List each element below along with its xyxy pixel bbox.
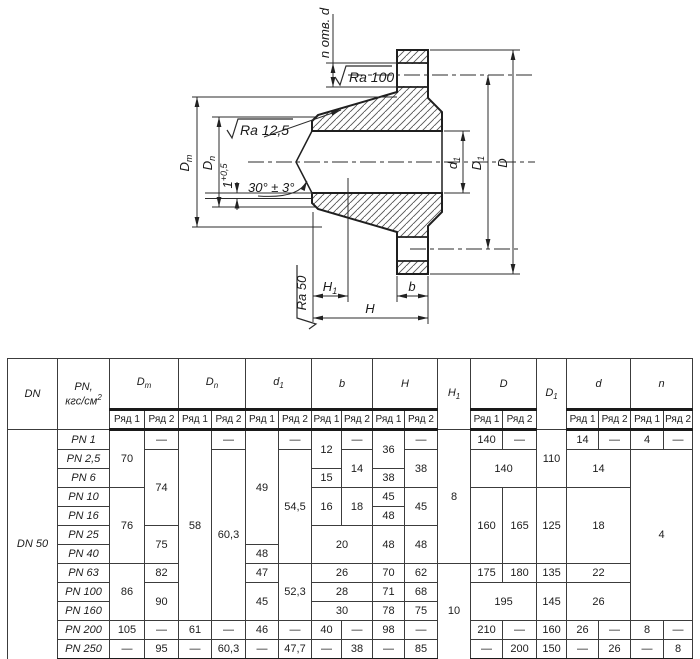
header-cell: Dm	[110, 359, 179, 410]
big-d-label: D	[495, 158, 510, 167]
flange-section-drawing: n отв. d Ra 100 Ra 12,5 30° ± 3° 1+0,5 D…	[0, 0, 700, 358]
big-d1-label: D1	[469, 156, 486, 170]
pn-cell: PN 10	[58, 488, 110, 507]
value-cell: 36	[373, 430, 405, 469]
header-row-variant: Ряд 1	[631, 410, 664, 430]
value-cell: 18	[567, 488, 631, 564]
value-cell: 14	[342, 450, 373, 488]
pn-cell: PN 1	[58, 430, 110, 450]
pn-cell: PN 160	[58, 602, 110, 621]
header-cell: H1	[438, 359, 471, 430]
value-cell: 22	[567, 564, 631, 583]
value-cell: 20	[312, 526, 373, 564]
value-cell: 26	[599, 640, 631, 659]
value-cell: —	[599, 621, 631, 640]
header-row-variant: Ряд 1	[179, 410, 212, 430]
value-cell: 78	[373, 602, 405, 621]
value-cell: 14	[567, 450, 631, 488]
value-cell: 18	[342, 488, 373, 526]
value-cell: 26	[567, 621, 599, 640]
header-cell: d	[567, 359, 631, 410]
value-cell: 90	[145, 583, 179, 621]
pn-cell: PN 40	[58, 545, 110, 564]
value-cell: —	[212, 430, 246, 450]
value-cell: 180	[503, 564, 537, 583]
value-cell: 15	[312, 469, 342, 488]
value-cell: 38	[373, 469, 405, 488]
value-cell: —	[312, 640, 342, 659]
value-cell: 58	[179, 430, 212, 621]
value-cell: —	[567, 640, 599, 659]
header-cell: D1	[537, 359, 567, 430]
value-cell: 38	[405, 450, 438, 488]
value-cell: —	[664, 621, 693, 640]
value-cell: 195	[471, 583, 537, 621]
value-cell: 145	[537, 583, 567, 621]
value-cell: —	[664, 430, 693, 450]
value-cell: 60,3	[212, 450, 246, 621]
value-cell: 85	[405, 640, 438, 659]
value-cell: 82	[145, 564, 179, 583]
value-cell: 26	[312, 564, 373, 583]
table-row: PN 6386824752,32670621017518013522	[8, 564, 693, 583]
dimension-lines	[197, 50, 513, 318]
value-cell: —	[246, 640, 279, 659]
header-row-variant: Ряд 1	[567, 410, 599, 430]
header-row-variant: Ряд 1	[471, 410, 503, 430]
value-cell: 4	[631, 430, 664, 450]
value-cell: —	[279, 621, 312, 640]
value-cell: 62	[405, 564, 438, 583]
header-row-variant: Ряд 1	[373, 410, 405, 430]
value-cell: 140	[471, 430, 503, 450]
drawing-labels: n отв. d Ra 100 Ra 12,5 30° ± 3° 1+0,5 D…	[177, 7, 510, 329]
value-cell: —	[373, 640, 405, 659]
value-cell: 45	[246, 583, 279, 621]
header-pn: PN,кгс/см2	[58, 359, 110, 430]
header-row-variant: Ряд 1	[312, 410, 342, 430]
drawing-sheet: n отв. d Ra 100 Ra 12,5 30° ± 3° 1+0,5 D…	[0, 0, 700, 659]
value-cell: 140	[471, 450, 537, 488]
value-cell: 74	[145, 450, 179, 526]
value-cell: 125	[537, 488, 567, 564]
pn-cell: PN 25	[58, 526, 110, 545]
value-cell: 75	[145, 526, 179, 564]
value-cell: 49	[246, 430, 279, 545]
table-row: PN 200105—61—46—40—98—210—16026—8—	[8, 621, 693, 640]
header-row-variant: Ряд 2	[664, 410, 693, 430]
header-cell: D	[471, 359, 537, 410]
header-row-variant: Ряд 2	[342, 410, 373, 430]
value-cell: 135	[537, 564, 567, 583]
value-cell: 26	[567, 583, 631, 621]
h-label: H	[365, 301, 375, 316]
value-cell: —	[631, 640, 664, 659]
value-cell: 47	[246, 564, 279, 583]
dn-label: Dn	[200, 156, 217, 170]
ra125-label: Ra 12,5	[240, 122, 289, 138]
value-cell: 110	[537, 430, 567, 488]
header-cell: n	[631, 359, 693, 410]
value-cell: —	[110, 640, 145, 659]
value-cell: —	[212, 621, 246, 640]
value-cell: —	[342, 430, 373, 450]
ra100-label: Ra 100	[349, 69, 394, 85]
value-cell: 10	[438, 564, 471, 659]
pn-cell: PN 16	[58, 507, 110, 526]
value-cell: 160	[471, 488, 503, 564]
value-cell: 52,3	[279, 564, 312, 621]
value-cell: 47,7	[279, 640, 312, 659]
header-row-variant: Ряд 2	[405, 410, 438, 430]
value-cell: 48	[373, 507, 405, 526]
value-cell: —	[179, 640, 212, 659]
header-cell: d1	[246, 359, 312, 410]
pn-cell: PN 250	[58, 640, 110, 659]
table-row: DN 50PN 170—58—49—12—36—8140—11014—4—	[8, 430, 693, 450]
value-cell: 30	[312, 602, 373, 621]
value-cell: 71	[373, 583, 405, 602]
svg-text:Ra 50: Ra 50	[294, 275, 309, 310]
value-cell: 45	[405, 488, 438, 526]
value-cell: 68	[405, 583, 438, 602]
value-cell: 61	[179, 621, 212, 640]
value-cell: —	[405, 621, 438, 640]
value-cell: 75	[405, 602, 438, 621]
header-row-variant: Ряд 2	[212, 410, 246, 430]
table-row: PN 250—95—60,3—47,7—38—85—200150—26—8	[8, 640, 693, 659]
value-cell: 48	[246, 545, 279, 564]
value-cell: 38	[342, 640, 373, 659]
value-cell: 95	[145, 640, 179, 659]
value-cell: 45	[373, 488, 405, 507]
value-cell: —	[471, 640, 503, 659]
n-holes-label: n отв. d	[317, 7, 332, 58]
value-cell: 175	[471, 564, 503, 583]
dimension-table-wrapper: DNPN,кгс/см2DmDnd1bHH1DD1dnРяд 1Ряд 2Ряд…	[7, 358, 693, 659]
d1-label: d1	[445, 157, 462, 169]
value-cell: 86	[110, 564, 145, 621]
header-row-variant: Ряд 2	[145, 410, 179, 430]
value-cell: 70	[373, 564, 405, 583]
value-cell: —	[503, 621, 537, 640]
pn-cell: PN 63	[58, 564, 110, 583]
h1-label: H1	[323, 279, 337, 296]
header-cell: Dn	[179, 359, 246, 410]
value-cell: 160	[537, 621, 567, 640]
value-cell: —	[145, 621, 179, 640]
header-row-variant: Ряд 1	[110, 410, 145, 430]
value-cell: —	[405, 430, 438, 450]
value-cell: —	[279, 430, 312, 450]
value-cell: 8	[664, 640, 693, 659]
angle-label: 30° ± 3°	[248, 180, 294, 195]
value-cell: 12	[312, 430, 342, 469]
value-cell: 210	[471, 621, 503, 640]
value-cell: —	[503, 430, 537, 450]
value-cell: 8	[631, 621, 664, 640]
value-cell: 60,3	[212, 640, 246, 659]
value-cell: 105	[110, 621, 145, 640]
value-cell: 165	[503, 488, 537, 564]
value-cell: —	[599, 430, 631, 450]
header-dn: DN	[8, 359, 58, 430]
value-cell: 76	[110, 488, 145, 564]
value-cell: 46	[246, 621, 279, 640]
value-cell: 8	[438, 430, 471, 564]
b-label: b	[408, 279, 415, 294]
value-cell: 48	[405, 526, 438, 564]
value-cell: 14	[567, 430, 599, 450]
value-cell: 28	[312, 583, 373, 602]
dn-cell: DN 50	[8, 430, 58, 659]
header-row-variant: Ряд 1	[246, 410, 279, 430]
value-cell: —	[145, 430, 179, 450]
value-cell: 98	[373, 621, 405, 640]
dm-label: Dm	[177, 154, 194, 171]
value-cell: 150	[537, 640, 567, 659]
dimension-table: DNPN,кгс/см2DmDnd1bHH1DD1dnРяд 1Ряд 2Ряд…	[7, 358, 693, 659]
value-cell: 70	[110, 430, 145, 488]
value-cell: 40	[312, 621, 342, 640]
header-row-variant: Ряд 2	[279, 410, 312, 430]
value-cell: 200	[503, 640, 537, 659]
value-cell: 16	[312, 488, 342, 526]
header-row-variant: Ряд 2	[599, 410, 631, 430]
value-cell: 48	[373, 526, 405, 564]
header-row-variant: Ряд 2	[503, 410, 537, 430]
pn-cell: PN 2,5	[58, 450, 110, 469]
pn-cell: PN 200	[58, 621, 110, 640]
value-cell: 4	[631, 450, 693, 621]
header-cell: H	[373, 359, 438, 410]
value-cell: —	[342, 621, 373, 640]
pn-cell: PN 6	[58, 469, 110, 488]
value-cell: 54,5	[279, 450, 312, 564]
table-row: PN 10761618454516016512518	[8, 488, 693, 507]
land-dimension-label: 1+0,5	[219, 163, 235, 189]
pn-cell: PN 100	[58, 583, 110, 602]
header-cell: b	[312, 359, 373, 410]
